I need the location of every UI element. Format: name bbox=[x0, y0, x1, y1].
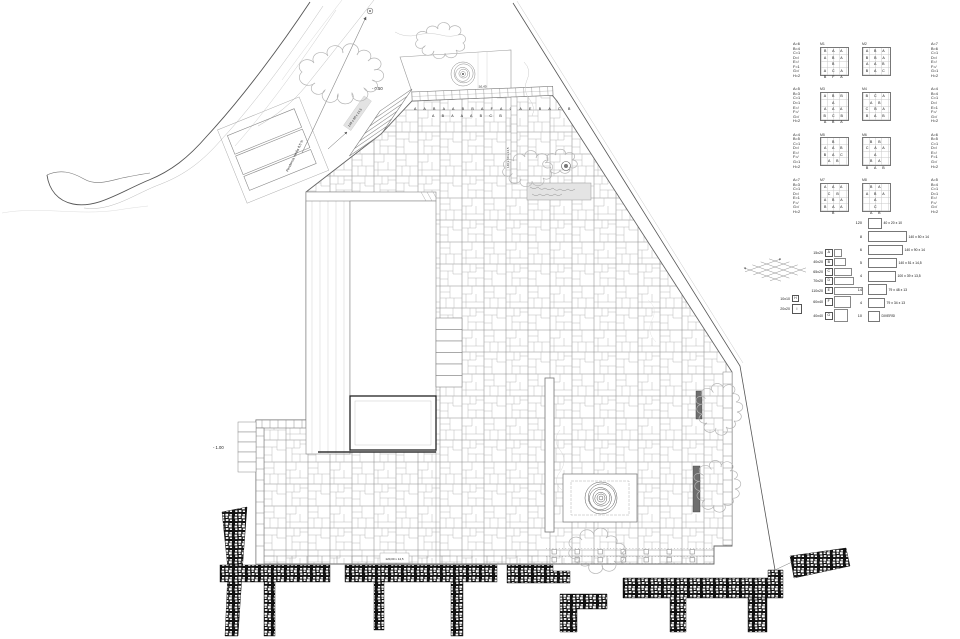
stone-dim-label: 110x20 bbox=[806, 289, 823, 293]
count-bar bbox=[868, 231, 907, 242]
legend-module-left: M3 A B B A A A A B C B A B A bbox=[820, 87, 849, 121]
legend-module-square: B C A A B C B A B A B bbox=[862, 92, 891, 121]
slot-wall bbox=[545, 378, 554, 532]
count-value: 6 bbox=[848, 248, 862, 252]
band-dimension-label: 36,40 bbox=[479, 84, 487, 88]
stone-dim-label: 70x20 bbox=[806, 279, 823, 283]
stone-letter: E bbox=[825, 287, 833, 295]
count-bar bbox=[868, 245, 903, 256]
tree-cloud-terrace bbox=[299, 44, 383, 104]
legend-module-grid: B A A A B A B A C A B F A bbox=[821, 48, 848, 75]
legend-module-grid: B B C A A A B A B A B bbox=[863, 138, 890, 165]
count-dim-label: 100 x 39 x 13,5 bbox=[898, 274, 921, 278]
stone-dim-label: 65x20 bbox=[806, 270, 823, 274]
wall-dimension-box: 120,00 x 14,5 bbox=[380, 553, 409, 563]
road-point-dot bbox=[369, 10, 371, 12]
building-steps bbox=[436, 318, 462, 387]
ruin-wall-pier1 bbox=[264, 582, 275, 636]
stone-extra-row: 20x20 I bbox=[775, 304, 802, 314]
count-dim-label: 140 x 51 x 14,5 bbox=[899, 261, 922, 265]
building-top-band bbox=[306, 192, 436, 201]
count-row: 8 140 x 50 x 14 bbox=[848, 231, 929, 242]
count-value: 8 bbox=[848, 235, 862, 239]
legend-module-right: M6 B B C A A A B A B A B bbox=[862, 133, 891, 167]
count-value: 5 bbox=[848, 261, 862, 265]
stone-letter: B bbox=[825, 259, 833, 267]
legend-module-square: B A A B A A C A B bbox=[862, 183, 891, 212]
legend-side-list-left: A=5 B=3 C=1 D=1 E=/ F=/ G=/ H=2 bbox=[793, 87, 806, 123]
legend-module-id: M2 bbox=[862, 42, 891, 46]
stone-letter-box: H bbox=[792, 295, 799, 302]
legend-module-square: A B A B B A A A B B A C bbox=[862, 47, 891, 76]
stone-letter-marks-row2: A B A A A B C B bbox=[432, 114, 505, 118]
legend-side-list-right: A=5 B=4 C=1 D=1 E=/ F=/ G=/ H=2 bbox=[931, 178, 944, 214]
count-value: 14 bbox=[848, 288, 862, 292]
legend-module-grid: A A A C B A B A B A A B bbox=[821, 184, 848, 211]
stone-letter: F bbox=[825, 298, 833, 306]
stone-bar bbox=[834, 309, 848, 322]
tree-spiral bbox=[585, 482, 617, 514]
ruin-wall-band2 bbox=[345, 565, 497, 582]
legend-module-id: M7 bbox=[820, 178, 849, 182]
ruin-wall-angled bbox=[790, 548, 850, 578]
legend-side-list-left: A=7 B=3 C=1 D=/ E=1 F=/ G=/ H=2 bbox=[793, 178, 806, 214]
stone-letter: G bbox=[825, 312, 833, 320]
stone-letter-marks-row1: A A B A A B B A F A C A E B A C B bbox=[414, 107, 574, 111]
slope-label: Pendenza media 8,5 % bbox=[285, 139, 304, 172]
legend-module-grid: B A A B A A C A B bbox=[863, 184, 890, 211]
legend-side-list-right: A=7 B=6 C=1 D=/ E=/ F=/ G=1 H=2 bbox=[931, 42, 944, 78]
site-plan-drawing: Pendenza media 8,5 % 36,40 bbox=[0, 0, 960, 639]
count-value: 10 bbox=[848, 314, 862, 318]
legend-row: A=4 B=5 C=1 D=/ E=/ F=/ G=1 H=2 M5 B A A… bbox=[793, 133, 944, 169]
legend-module-id: M8 bbox=[862, 178, 891, 182]
count-dim-label: 79 x 48 x 13 bbox=[889, 288, 907, 292]
legend-row: A=7 B=3 C=1 D=/ E=1 F=/ G=/ H=2 M7 A A A… bbox=[793, 178, 944, 214]
count-dim-label: 140 x 90 x 14 bbox=[905, 248, 925, 252]
ruin-wall-pier4 bbox=[748, 598, 767, 632]
legend-row: A=6 B=4 C=1 D=/ E=/ F=1 G=/ H=2 M1 B A A… bbox=[793, 42, 944, 78]
ruin-wall-band1 bbox=[220, 565, 330, 582]
stone-letter: A bbox=[825, 249, 833, 257]
count-table: 120 40 x 20 x 10 8 140 x 50 x 14 6 140 x… bbox=[848, 218, 929, 324]
legend-module-square: B A A A B A B A C A B F A bbox=[820, 47, 849, 76]
count-dim-label: 140 x 50 x 14 bbox=[909, 235, 929, 239]
stone-bar bbox=[834, 249, 842, 257]
count-value: 4 bbox=[848, 274, 862, 278]
ruin-wall-L bbox=[560, 594, 607, 632]
building-pool bbox=[350, 396, 436, 450]
stone-extra-row: 10x10 H bbox=[775, 295, 802, 302]
planter-south bbox=[563, 474, 637, 522]
ruin-wall-pier2 bbox=[374, 582, 384, 630]
count-row: 5 140 x 51 x 14,5 bbox=[848, 258, 929, 269]
legend-module-left: M7 A A A C B A B A B A A B bbox=[820, 178, 849, 212]
stone-letter-box: I bbox=[792, 304, 802, 314]
count-row: 120 40 x 20 x 10 bbox=[848, 218, 929, 229]
edge-dim-text: 140 x 50 x 14,5 bbox=[506, 147, 510, 168]
count-bar bbox=[868, 271, 896, 282]
count-row: 10 DIVERSI bbox=[848, 311, 929, 322]
stone-letter: D bbox=[825, 277, 833, 285]
count-row: 6 140 x 90 x 14 bbox=[848, 245, 929, 256]
legend-side-list-left: A=4 B=5 C=1 D=/ E=/ F=/ G=1 H=2 bbox=[793, 133, 806, 169]
legend-module-right: M2 A B A B B A A A B B A C bbox=[862, 42, 891, 76]
stone-dim-label: 20x20 bbox=[775, 307, 790, 311]
count-bar bbox=[868, 298, 885, 309]
stone-bar bbox=[834, 258, 846, 266]
legend-module-right: M8 B A A B A A C A B bbox=[862, 178, 891, 212]
axon-diagram bbox=[742, 244, 808, 296]
count-dim-label: DIVERSI bbox=[882, 314, 896, 318]
count-value: 4 bbox=[848, 301, 862, 305]
legend-module-left: M1 B A A A B A B A C A B F A bbox=[820, 42, 849, 76]
stone-letter: C bbox=[825, 268, 833, 276]
count-bar bbox=[868, 218, 882, 229]
legend-row: A=5 B=3 C=1 D=1 E=/ F=/ G=/ H=2 M3 A B B… bbox=[793, 87, 944, 123]
legend-module-left: M5 B A A B B A C A B bbox=[820, 133, 849, 167]
legend-module-id: M4 bbox=[862, 87, 891, 91]
count-value: 120 bbox=[848, 221, 862, 225]
legend-module-square: B B C A A A B A B A B bbox=[862, 137, 891, 166]
stone-dim-label: 10x10 bbox=[775, 297, 790, 301]
legend-side-list-right: A=6 B=5 C=1 D=/ E=/ F=1 G=/ H=2 bbox=[931, 133, 944, 169]
legend-module-id: M3 bbox=[820, 87, 849, 91]
level-label-left: - 1.00 bbox=[213, 445, 224, 450]
legend-module-right: M4 B C A A B C B A B A B bbox=[862, 87, 891, 121]
count-dim-label: 40 x 20 x 10 bbox=[884, 221, 902, 225]
legend-panel: A=6 B=4 C=1 D=/ E=/ F=1 G=/ H=2 M1 B A A… bbox=[793, 42, 944, 215]
stone-dim-label: 40x40 bbox=[806, 314, 823, 318]
count-dim-label: 79 x 34 x 13 bbox=[887, 301, 905, 305]
legend-module-grid: B A A B B A C A B bbox=[821, 138, 848, 165]
count-row: 14 79 x 48 x 13 bbox=[848, 284, 929, 295]
legend-side-list-right: A=4 B=4 C=1 D=/ E=1 F=/ G=/ H=2 bbox=[931, 87, 944, 123]
count-row: 4 100 x 39 x 13,5 bbox=[848, 271, 929, 282]
legend-module-id: M5 bbox=[820, 133, 849, 137]
count-bar bbox=[868, 284, 887, 295]
wall-dim-text: 120,00 x 14,5 bbox=[385, 557, 404, 561]
wing-border-ladder bbox=[238, 422, 256, 472]
count-row: 4 79 x 34 x 13 bbox=[848, 298, 929, 309]
count-bar bbox=[868, 311, 880, 322]
legend-module-id: M1 bbox=[820, 42, 849, 46]
legend-module-square: B A A B B A C A B bbox=[820, 137, 849, 166]
ruin-wall-band3 bbox=[507, 565, 570, 583]
legend-module-id: M6 bbox=[862, 133, 891, 137]
stone-dim-label: 40x20 bbox=[806, 260, 823, 264]
legend-module-grid: A B B A A A A B C B A B A bbox=[821, 93, 848, 120]
stone-dim-label: 60x40 bbox=[806, 300, 823, 304]
tree-trunk bbox=[562, 162, 571, 171]
count-bar bbox=[868, 258, 897, 269]
legend-module-grid: B C A A B C B A B A B bbox=[863, 93, 890, 120]
legend-module-square: A B B A A A A B C B A B A bbox=[820, 92, 849, 121]
ruin-wall-pier3 bbox=[451, 582, 463, 636]
stone-size-extras: 10x10 H 20x20 I bbox=[775, 295, 802, 316]
legend-module-grid: A B A B B A A A B B A C bbox=[863, 48, 890, 75]
legend-side-list-left: A=6 B=4 C=1 D=/ E=/ F=1 G=/ H=2 bbox=[793, 42, 806, 78]
legend-module-square: A A A C B A B A B A A B bbox=[820, 183, 849, 212]
stone-dim-label: 15x20 bbox=[806, 251, 823, 255]
